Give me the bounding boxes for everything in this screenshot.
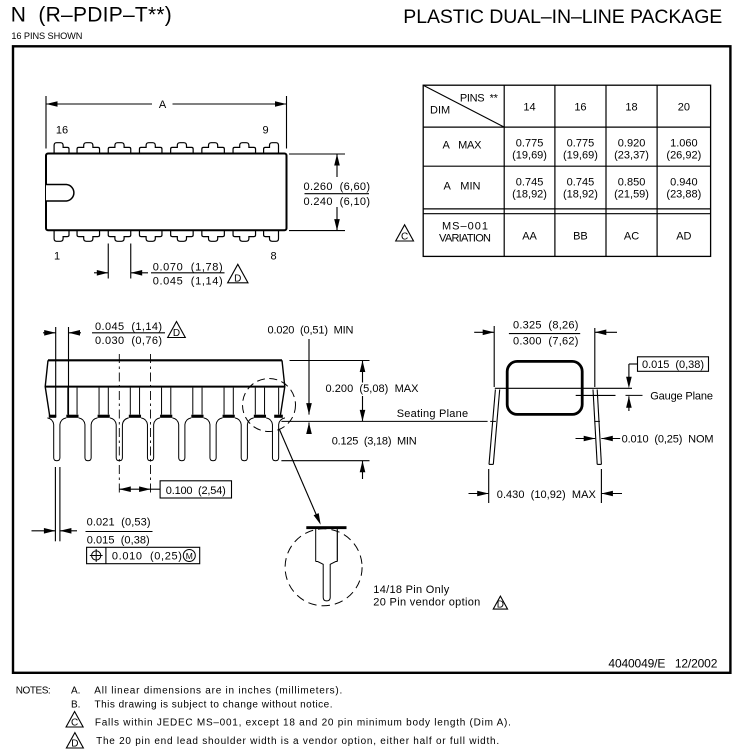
svg-text:0.100 (2,54): 0.100 (2,54): [166, 485, 226, 497]
svg-text:(19,69): (19,69): [512, 149, 547, 161]
svg-text:8: 8: [270, 251, 276, 263]
svg-text:(18,92): (18,92): [512, 188, 547, 200]
svg-text:Falls within JEDEC MS–001, exc: Falls within JEDEC MS–001, except 18 and…: [95, 718, 511, 729]
svg-text:1: 1: [54, 251, 60, 263]
svg-text:All linear dimensions are in i: All linear dimensions are in inches (mil…: [94, 686, 342, 697]
svg-text:0.020 (0,51) MIN: 0.020 (0,51) MIN: [268, 324, 354, 336]
svg-text:A MIN: A MIN: [444, 181, 481, 193]
svg-text:20: 20: [678, 101, 690, 113]
svg-text:0.045 (1,14): 0.045 (1,14): [153, 275, 223, 287]
svg-text:9: 9: [262, 125, 268, 137]
svg-text:(19,69): (19,69): [563, 149, 598, 161]
svg-text:16: 16: [574, 101, 586, 113]
svg-text:0.045 (1,14): 0.045 (1,14): [95, 321, 162, 333]
svg-text:0.920: 0.920: [618, 137, 646, 149]
svg-text:0.850: 0.850: [618, 176, 646, 188]
svg-text:(23,37): (23,37): [614, 149, 649, 161]
svg-text:0.200 (5,08) MAX: 0.200 (5,08) MAX: [326, 383, 420, 395]
svg-text:0.745: 0.745: [516, 176, 544, 188]
svg-text:A MAX: A MAX: [443, 140, 483, 152]
svg-text:B.: B.: [71, 700, 80, 711]
svg-text:N (R–PDIP–T**): N (R–PDIP–T**): [11, 3, 172, 26]
svg-text:M: M: [186, 551, 193, 561]
svg-text:VARIATION: VARIATION: [439, 233, 491, 245]
svg-text:0.010 (0,25): 0.010 (0,25): [112, 551, 182, 563]
svg-text:MS–001: MS–001: [442, 220, 488, 232]
svg-text:0.260 (6,60): 0.260 (6,60): [304, 181, 371, 193]
svg-text:0.030 (0,76): 0.030 (0,76): [95, 335, 162, 347]
svg-text:C: C: [71, 718, 78, 729]
svg-text:0.430 (10,92) MAX: 0.430 (10,92) MAX: [497, 489, 597, 501]
svg-text:0.775: 0.775: [516, 137, 544, 149]
svg-text:0.015 (0,38): 0.015 (0,38): [642, 359, 704, 371]
svg-text:A.: A.: [71, 686, 80, 697]
svg-text:AA: AA: [522, 231, 537, 243]
svg-text:Gauge Plane: Gauge Plane: [650, 391, 713, 403]
svg-text:The 20 pin end lead shoulder w: The 20 pin end lead shoulder width is a …: [96, 736, 499, 747]
svg-text:C: C: [401, 232, 408, 243]
svg-text:(21,59): (21,59): [614, 188, 649, 200]
svg-text:18: 18: [625, 101, 637, 113]
svg-text:(26,92): (26,92): [666, 149, 701, 161]
svg-text:PLASTIC DUAL–IN–LINE PACKAGE: PLASTIC DUAL–IN–LINE PACKAGE: [403, 6, 722, 28]
svg-text:20 Pin vendor option: 20 Pin vendor option: [373, 597, 480, 609]
svg-text:0.775: 0.775: [567, 137, 595, 149]
svg-text:0.940: 0.940: [670, 176, 698, 188]
svg-text:D: D: [497, 600, 504, 611]
svg-text:0.745: 0.745: [567, 176, 595, 188]
svg-text:DIM: DIM: [430, 105, 450, 117]
svg-text:D: D: [71, 739, 78, 750]
svg-text:NOTES:: NOTES:: [16, 686, 51, 697]
svg-text:BB: BB: [573, 231, 588, 243]
svg-text:PINS **: PINS **: [460, 93, 499, 105]
svg-text:(23,88): (23,88): [666, 188, 701, 200]
svg-text:0.300 (7,62): 0.300 (7,62): [513, 336, 579, 348]
svg-text:0.010 (0,25) NOM: 0.010 (0,25) NOM: [622, 434, 714, 446]
svg-text:0.240 (6,10): 0.240 (6,10): [304, 196, 371, 208]
svg-text:1.060: 1.060: [670, 137, 698, 149]
svg-text:14: 14: [523, 101, 535, 113]
svg-text:D: D: [234, 273, 241, 284]
svg-text:0.070 (1,78): 0.070 (1,78): [153, 262, 223, 274]
svg-text:A: A: [159, 99, 167, 111]
svg-text:14/18 Pin Only: 14/18 Pin Only: [373, 584, 450, 596]
svg-text:Seating Plane: Seating Plane: [397, 408, 468, 420]
svg-text:16 PINS SHOWN: 16 PINS SHOWN: [11, 31, 82, 41]
svg-text:This drawing is subject to cha: This drawing is subject to change withou…: [95, 700, 333, 711]
svg-text:0.021 (0,53): 0.021 (0,53): [87, 517, 151, 529]
svg-text:0.325 (8,26): 0.325 (8,26): [513, 319, 579, 331]
svg-text:AC: AC: [624, 231, 639, 243]
svg-text:AD: AD: [676, 231, 691, 243]
svg-text:16: 16: [56, 125, 68, 137]
svg-text:(18,92): (18,92): [563, 188, 598, 200]
svg-text:0.125 (3,18) MIN: 0.125 (3,18) MIN: [332, 435, 417, 447]
svg-text:D: D: [173, 328, 180, 339]
svg-text:0.015 (0,38): 0.015 (0,38): [87, 535, 150, 547]
svg-text:4040049/E 12/2002: 4040049/E 12/2002: [608, 657, 717, 671]
